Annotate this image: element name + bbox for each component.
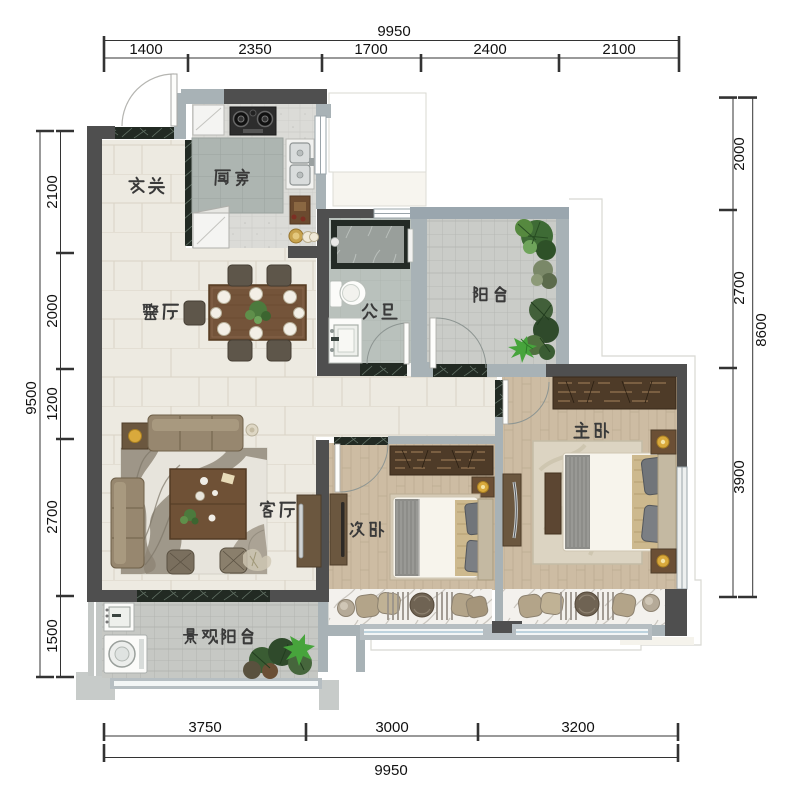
svg-text:1700: 1700 <box>354 41 387 58</box>
svg-text:1400: 1400 <box>129 41 162 58</box>
svg-text:9500: 9500 <box>23 381 40 414</box>
svg-text:3000: 3000 <box>375 719 408 736</box>
svg-text:2000: 2000 <box>731 137 748 170</box>
svg-text:9950: 9950 <box>374 762 407 779</box>
svg-text:3900: 3900 <box>731 460 748 493</box>
svg-text:2100: 2100 <box>44 175 61 208</box>
svg-text:3200: 3200 <box>561 719 594 736</box>
svg-text:2700: 2700 <box>731 271 748 304</box>
svg-text:1200: 1200 <box>44 387 61 420</box>
svg-text:1500: 1500 <box>44 619 61 652</box>
svg-text:2350: 2350 <box>238 41 271 58</box>
svg-text:8600: 8600 <box>753 313 770 346</box>
svg-text:9950: 9950 <box>377 23 410 40</box>
svg-text:2400: 2400 <box>473 41 506 58</box>
svg-text:2000: 2000 <box>44 294 61 327</box>
svg-text:2100: 2100 <box>602 41 635 58</box>
svg-text:2700: 2700 <box>44 500 61 533</box>
svg-text:3750: 3750 <box>188 719 221 736</box>
